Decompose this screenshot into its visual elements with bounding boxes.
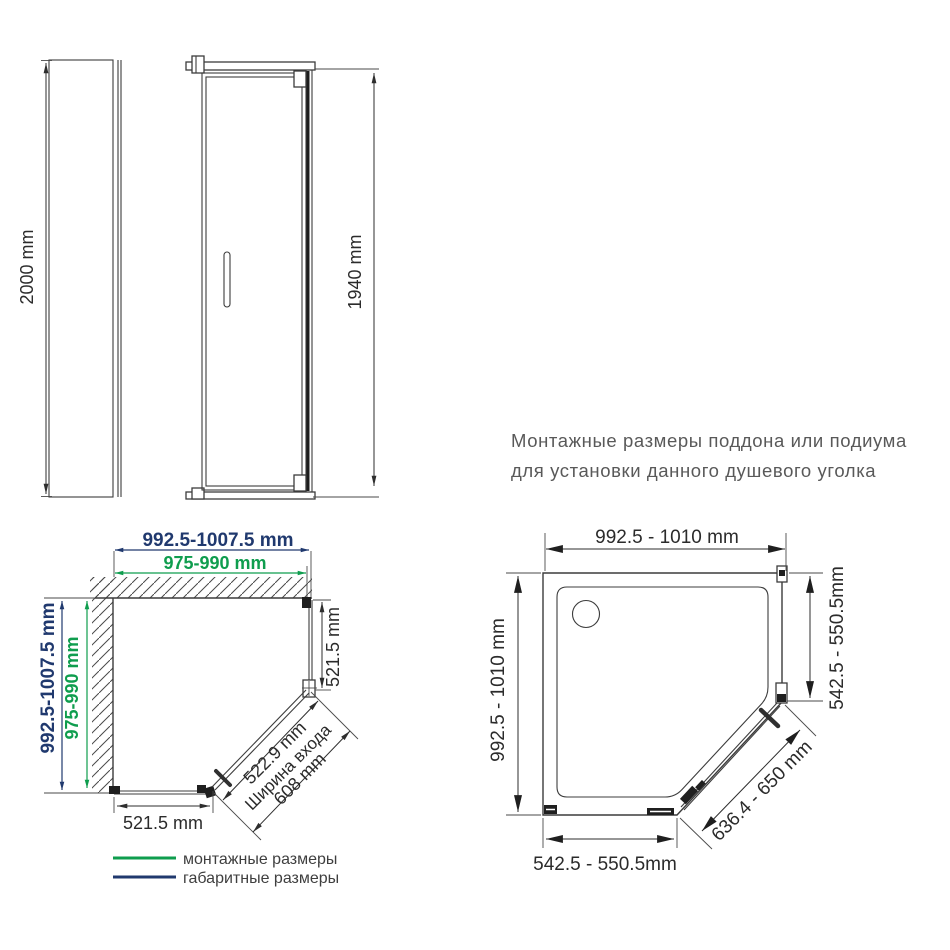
door-glass-outline: [202, 73, 306, 490]
title-line2: для установки данного душевого уголка: [511, 460, 876, 481]
label-bottom-side: 521.5 mm: [123, 813, 203, 833]
door-pivot-top: [302, 680, 317, 697]
tray-plan-view: 992.5 - 1010 mm 992.5 - 1010 mm 542.5 - …: [488, 527, 848, 875]
drain-circle: [573, 601, 600, 628]
dim-witness: [680, 818, 712, 849]
label-left-overall: 992.5-1007.5 mm: [38, 602, 59, 753]
door-handle: [224, 252, 230, 307]
label-right-side: 521.5 mm: [323, 607, 343, 687]
dim-tray-top: 992.5 - 1010 mm: [545, 527, 786, 571]
technical-drawing-page: 2000 mm 1940 mm 992.5-1007.5 mm 975-990 …: [0, 0, 950, 950]
tray-inner-outline: [557, 587, 768, 797]
label-top-overall: 992.5-1007.5 mm: [142, 530, 293, 551]
label-tray-bottom: 542.5 - 550.5mm: [533, 854, 677, 875]
corner-profile-top-clip: [779, 570, 785, 576]
dim-tray-bottom: 542.5 - 550.5mm: [533, 818, 677, 875]
side-glass-panel: [49, 60, 113, 497]
label-tray-left: 992.5 - 1010 mm: [488, 618, 509, 762]
door-knob: [216, 771, 230, 785]
dim-plan-bottom-side: 521.5 mm: [114, 791, 213, 833]
dim-witness: [785, 705, 816, 736]
title-line1: Монтажные размеры поддона или подиума: [511, 430, 907, 451]
drawing-canvas: 2000 mm 1940 mm 992.5-1007.5 mm 975-990 …: [0, 0, 950, 950]
dim-tray-left: 992.5 - 1010 mm: [488, 573, 541, 815]
dim-plan-right-side: 521.5 mm: [313, 600, 343, 690]
legend-overall-label: габаритные размеры: [183, 870, 339, 887]
bottom-support-bar: [186, 492, 315, 499]
dim-total-height: 2000 mm: [17, 61, 52, 497]
label-tray-top: 992.5 - 1010 mm: [595, 527, 739, 548]
label-left-mounting: 975-990 mm: [62, 636, 82, 739]
wall-hatch-left: [92, 577, 113, 793]
tray-hardware: [544, 566, 787, 815]
bottom-hinge: [294, 475, 306, 491]
label-glass-height: 1940 mm: [345, 234, 365, 309]
legend-mounting-label: монтажные размеры: [183, 851, 337, 868]
front-elevation-view: 2000 mm 1940 mm: [17, 56, 379, 499]
dim-glass-height: 1940 mm: [313, 69, 379, 497]
wall-profile-bracket-top: [302, 597, 311, 608]
dim-tray-right: 542.5 - 550.5mm: [787, 566, 848, 710]
label-tray-diagonal: 636.4 - 650 mm: [708, 737, 817, 846]
door-glass-inner-line: [206, 77, 302, 486]
plan-view-enclosure: 992.5-1007.5 mm 975-990 mm 992.5-1007.5 …: [38, 530, 358, 887]
label-total-height: 2000 mm: [17, 229, 37, 304]
label-top-mounting: 975-990 mm: [163, 553, 266, 573]
tray-outer-outline: [543, 573, 782, 815]
wall-profile-bracket-left: [109, 786, 120, 794]
hinge-right-clip: [777, 694, 786, 702]
title-note: Монтажные размеры поддона или подиума дл…: [511, 430, 907, 481]
top-support-bar: [186, 62, 315, 70]
top-hinge: [294, 71, 306, 87]
top-bar-clamp: [192, 56, 204, 73]
dim-entry-width: 522.9 mm Ширина входа: [214, 692, 358, 840]
wall-hatch-top: [90, 577, 312, 598]
dim-tray-diagonal: 636.4 - 650 mm: [680, 705, 817, 849]
label-tray-right: 542.5 - 550.5mm: [827, 566, 848, 710]
legend: монтажные размеры габаритные размеры: [113, 851, 339, 887]
